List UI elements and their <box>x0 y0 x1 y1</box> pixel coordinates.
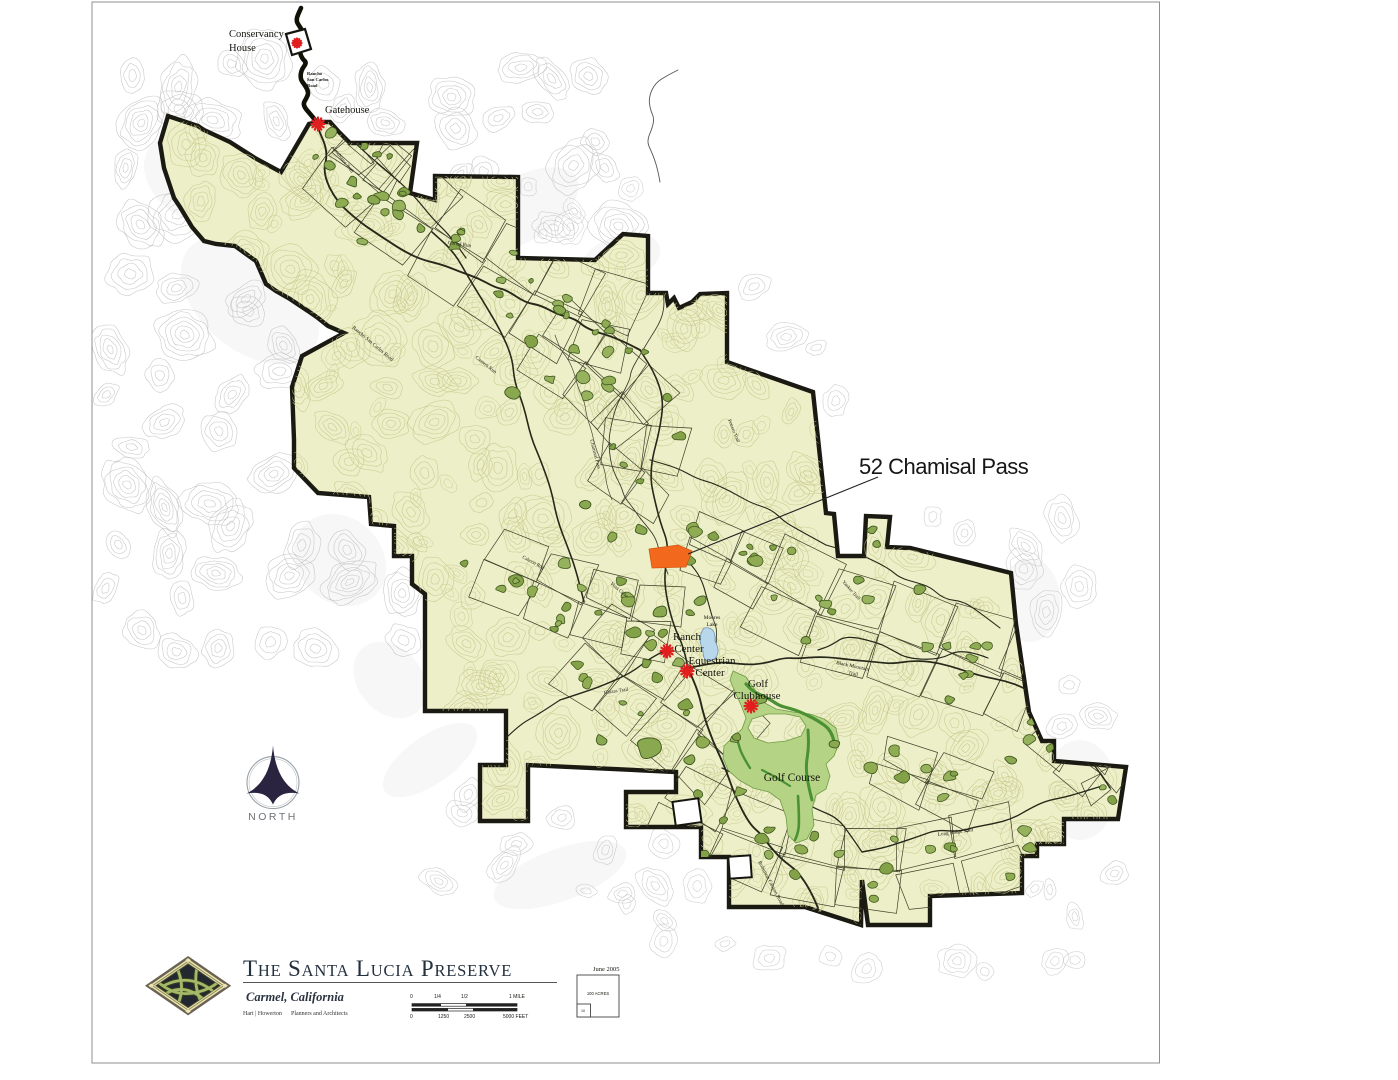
svg-text:Lake: Lake <box>707 622 719 628</box>
svg-text:2500: 2500 <box>464 1014 475 1020</box>
svg-text:Rancho: Rancho <box>307 71 323 76</box>
svg-text:June 2005: June 2005 <box>593 966 620 973</box>
svg-text:Moores: Moores <box>704 615 721 621</box>
svg-text:Golf Course: Golf Course <box>764 772 821 784</box>
svg-text:Center: Center <box>674 643 704 655</box>
svg-text:NORTH: NORTH <box>248 811 298 823</box>
svg-text:Ranch: Ranch <box>673 631 702 643</box>
svg-text:0: 0 <box>410 994 413 1000</box>
svg-text:100 ACRES: 100 ACRES <box>587 991 610 996</box>
svg-text:Planners and Architects: Planners and Architects <box>291 1011 348 1017</box>
svg-text:10: 10 <box>581 1009 585 1013</box>
svg-text:Carmel, California: Carmel, California <box>246 990 344 1004</box>
svg-text:52 Chamisal Pass: 52 Chamisal Pass <box>859 454 1029 479</box>
svg-text:1/2: 1/2 <box>461 994 468 1000</box>
svg-text:5000 FEET: 5000 FEET <box>503 1014 528 1020</box>
svg-text:Conservancy: Conservancy <box>229 29 285 40</box>
svg-text:0: 0 <box>410 1014 413 1020</box>
svg-text:Golf: Golf <box>748 678 769 690</box>
svg-text:1/4: 1/4 <box>434 994 441 1000</box>
svg-text:Equestrian: Equestrian <box>688 655 736 667</box>
svg-text:1250: 1250 <box>438 1014 449 1020</box>
svg-text:Gatehouse: Gatehouse <box>325 105 370 116</box>
svg-text:San Carlos: San Carlos <box>307 77 329 82</box>
svg-text:1 MILE: 1 MILE <box>509 994 526 1000</box>
svg-text:Road: Road <box>307 83 318 88</box>
svg-text:Hart | Howerton: Hart | Howerton <box>243 1011 282 1017</box>
svg-text:House: House <box>229 43 256 54</box>
svg-text:Clubhouse: Clubhouse <box>733 690 780 702</box>
svg-text:Center: Center <box>695 667 725 679</box>
